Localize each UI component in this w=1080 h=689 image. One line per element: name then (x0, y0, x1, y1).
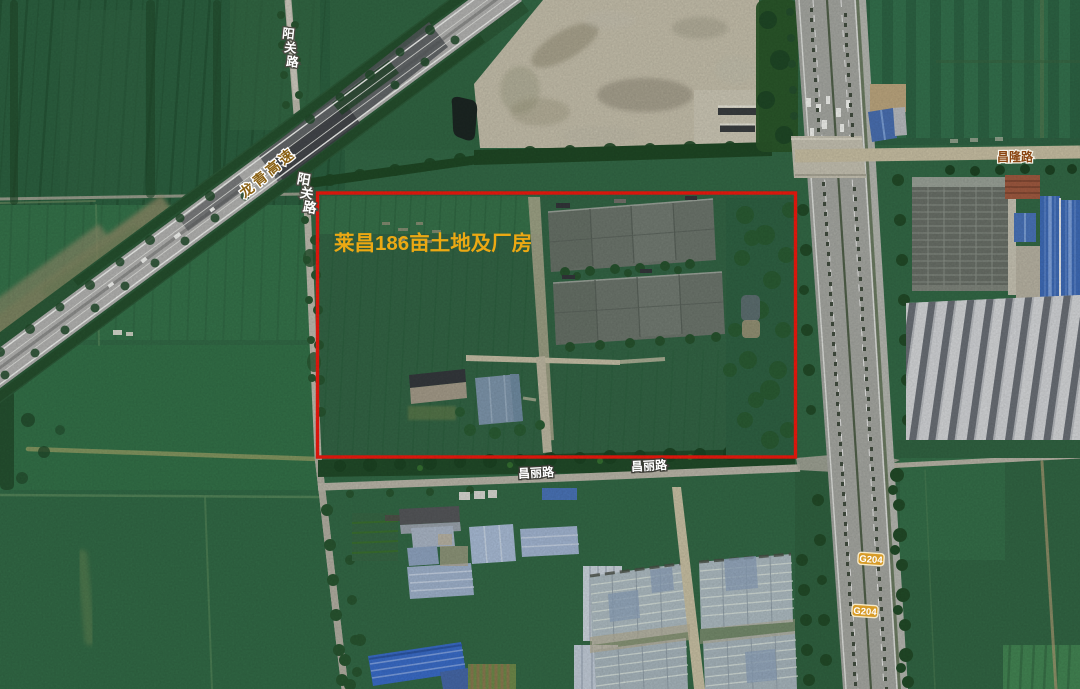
svg-text:阳: 阳 (281, 25, 295, 41)
svg-text:G204: G204 (859, 554, 884, 567)
svg-text:路: 路 (285, 53, 299, 69)
svg-text:G204: G204 (853, 606, 878, 619)
svg-text:莱昌186亩土地及厂房: 莱昌186亩土地及厂房 (334, 231, 532, 255)
svg-text:关: 关 (283, 39, 297, 55)
svg-text:昌丽路: 昌丽路 (631, 457, 669, 474)
svg-text:昌隆路: 昌隆路 (997, 149, 1034, 164)
svg-text:昌丽路: 昌丽路 (518, 464, 556, 481)
